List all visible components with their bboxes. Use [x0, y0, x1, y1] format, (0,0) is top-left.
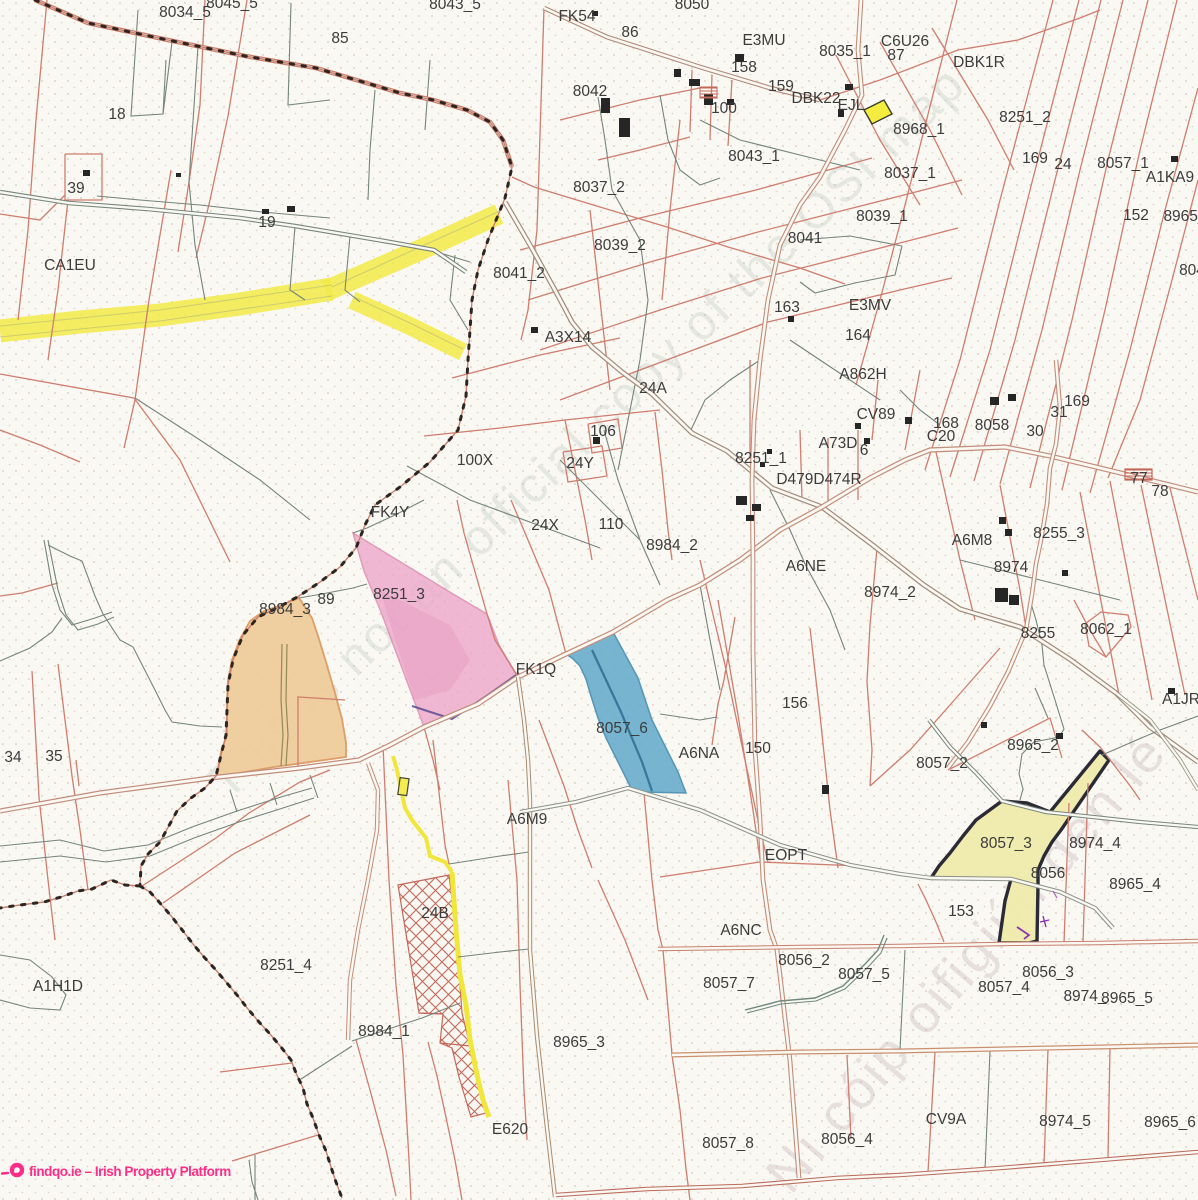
svg-text:8965_2: 8965_2: [1007, 737, 1059, 754]
svg-text:8251_2: 8251_2: [999, 109, 1051, 126]
svg-text:A1JR: A1JR: [1162, 691, 1198, 708]
svg-text:8974_5: 8974_5: [1039, 1113, 1091, 1130]
svg-text:8251_3: 8251_3: [373, 586, 425, 603]
svg-text:169: 169: [1022, 150, 1048, 167]
svg-text:159: 159: [768, 78, 794, 95]
svg-text:86: 86: [621, 24, 638, 41]
svg-text:8251_1: 8251_1: [735, 450, 787, 467]
svg-text:EOPT: EOPT: [765, 847, 808, 864]
svg-text:8057_4: 8057_4: [978, 979, 1030, 996]
svg-text:8043_5: 8043_5: [429, 0, 481, 13]
svg-text:8043_1: 8043_1: [728, 148, 780, 165]
svg-text:6: 6: [860, 442, 869, 459]
svg-text:156: 156: [782, 695, 808, 712]
svg-text:30: 30: [1026, 423, 1044, 440]
svg-text:DBK22: DBK22: [791, 90, 840, 107]
svg-text:8035_1: 8035_1: [819, 43, 871, 60]
svg-text:FK1Q: FK1Q: [516, 661, 556, 678]
svg-text:findqo.ie – Irish Property Pla: findqo.ie – Irish Property Platform: [29, 1164, 231, 1179]
svg-text:8984_3: 8984_3: [259, 601, 311, 618]
svg-text:8965_: 8965_: [1163, 208, 1198, 225]
svg-text:8965_4: 8965_4: [1109, 876, 1161, 893]
svg-text:77: 77: [1130, 470, 1147, 487]
svg-text:18: 18: [108, 106, 125, 123]
svg-text:A6NE: A6NE: [786, 558, 827, 575]
svg-text:8057_7: 8057_7: [703, 975, 755, 992]
svg-text:106: 106: [590, 423, 616, 440]
svg-text:34: 34: [4, 749, 22, 766]
svg-text:85: 85: [331, 30, 348, 47]
svg-text:89: 89: [317, 591, 334, 608]
svg-text:A862H: A862H: [839, 366, 886, 383]
svg-text:35: 35: [45, 748, 62, 765]
svg-text:E3MU: E3MU: [742, 32, 785, 49]
svg-text:8050: 8050: [675, 0, 710, 13]
svg-text:110: 110: [599, 516, 624, 533]
svg-text:C20: C20: [927, 428, 956, 445]
svg-text:A6NC: A6NC: [720, 922, 761, 939]
svg-text:163: 163: [774, 299, 800, 316]
svg-text:100X: 100X: [457, 452, 494, 469]
svg-text:8037_2: 8037_2: [573, 179, 625, 196]
svg-text:8056_2: 8056_2: [778, 952, 830, 969]
svg-text:8039_1: 8039_1: [856, 208, 908, 225]
svg-text:8056: 8056: [1031, 865, 1065, 882]
svg-text:8974_2: 8974_2: [864, 584, 916, 601]
svg-text:8255_3: 8255_3: [1033, 525, 1085, 542]
svg-text:8984_2: 8984_2: [646, 537, 698, 554]
svg-text:169: 169: [1064, 393, 1090, 410]
svg-text:8056_3: 8056_3: [1022, 964, 1074, 981]
svg-text:FK54: FK54: [558, 8, 595, 25]
svg-text:8057_8: 8057_8: [702, 1135, 754, 1152]
svg-text:8041: 8041: [788, 230, 822, 247]
svg-text:A1KA9: A1KA9: [1146, 169, 1194, 186]
svg-text:EJL: EJL: [838, 97, 865, 114]
svg-text:24B: 24B: [421, 905, 449, 922]
svg-text:8974_4: 8974_4: [1069, 835, 1121, 852]
svg-text:8057_3: 8057_3: [980, 835, 1032, 852]
svg-text:8965_3: 8965_3: [553, 1034, 605, 1051]
svg-text:8041_2: 8041_2: [493, 265, 545, 282]
svg-text:8251_4: 8251_4: [260, 957, 312, 974]
svg-text:8255: 8255: [1021, 625, 1055, 642]
svg-text:8062_1: 8062_1: [1080, 621, 1132, 638]
svg-text:8056_4: 8056_4: [821, 1131, 873, 1148]
svg-text:A6M8: A6M8: [952, 532, 993, 549]
svg-text:A1H1D: A1H1D: [33, 978, 83, 995]
svg-text:8057_5: 8057_5: [838, 966, 890, 983]
svg-text:8057_2: 8057_2: [916, 755, 968, 772]
svg-text:CV89: CV89: [857, 406, 896, 423]
svg-text:FK4Y: FK4Y: [371, 504, 410, 521]
svg-text:8039_2: 8039_2: [594, 237, 646, 254]
svg-text:152: 152: [1123, 207, 1149, 224]
svg-text:D479D474R: D479D474R: [776, 471, 861, 488]
svg-text:153: 153: [948, 903, 974, 920]
svg-text:100: 100: [711, 100, 737, 117]
svg-text:A73D: A73D: [819, 435, 858, 452]
svg-text:150: 150: [745, 740, 771, 757]
svg-text:DBK1R: DBK1R: [953, 54, 1005, 71]
svg-text:24: 24: [1054, 156, 1072, 173]
svg-text:8057_1: 8057_1: [1097, 155, 1149, 172]
svg-text:24A: 24A: [639, 380, 667, 397]
svg-text:8034_5: 8034_5: [159, 4, 211, 21]
svg-text:78: 78: [1151, 483, 1168, 500]
svg-text:A3X14: A3X14: [545, 329, 592, 346]
svg-text:8965_5: 8965_5: [1101, 990, 1153, 1007]
svg-text:8058: 8058: [975, 417, 1009, 434]
svg-text:E620: E620: [492, 1121, 529, 1138]
svg-text:8968_1: 8968_1: [893, 121, 945, 138]
svg-text:87: 87: [887, 47, 904, 64]
svg-text:39: 39: [67, 180, 84, 197]
svg-text:8042: 8042: [573, 83, 607, 100]
svg-text:19: 19: [258, 214, 275, 231]
svg-text:CA1EU: CA1EU: [44, 257, 96, 274]
svg-text:164: 164: [845, 327, 871, 344]
svg-text:804: 804: [1179, 262, 1198, 279]
svg-text:24X: 24X: [531, 517, 559, 534]
svg-text:E3MV: E3MV: [849, 297, 892, 314]
svg-text:8965_6: 8965_6: [1144, 1114, 1196, 1131]
svg-text:8984_1: 8984_1: [358, 1023, 410, 1040]
svg-text:8974: 8974: [994, 559, 1029, 576]
svg-text:A6M9: A6M9: [507, 811, 548, 828]
svg-text:8057_6: 8057_6: [596, 720, 648, 737]
svg-text:24Y: 24Y: [566, 455, 594, 472]
svg-text:8045_5: 8045_5: [206, 0, 258, 12]
svg-text:8037_1: 8037_1: [884, 165, 936, 182]
svg-text:158: 158: [731, 59, 757, 76]
svg-text:A6NA: A6NA: [679, 745, 720, 762]
svg-text:CV9A: CV9A: [926, 1111, 967, 1128]
